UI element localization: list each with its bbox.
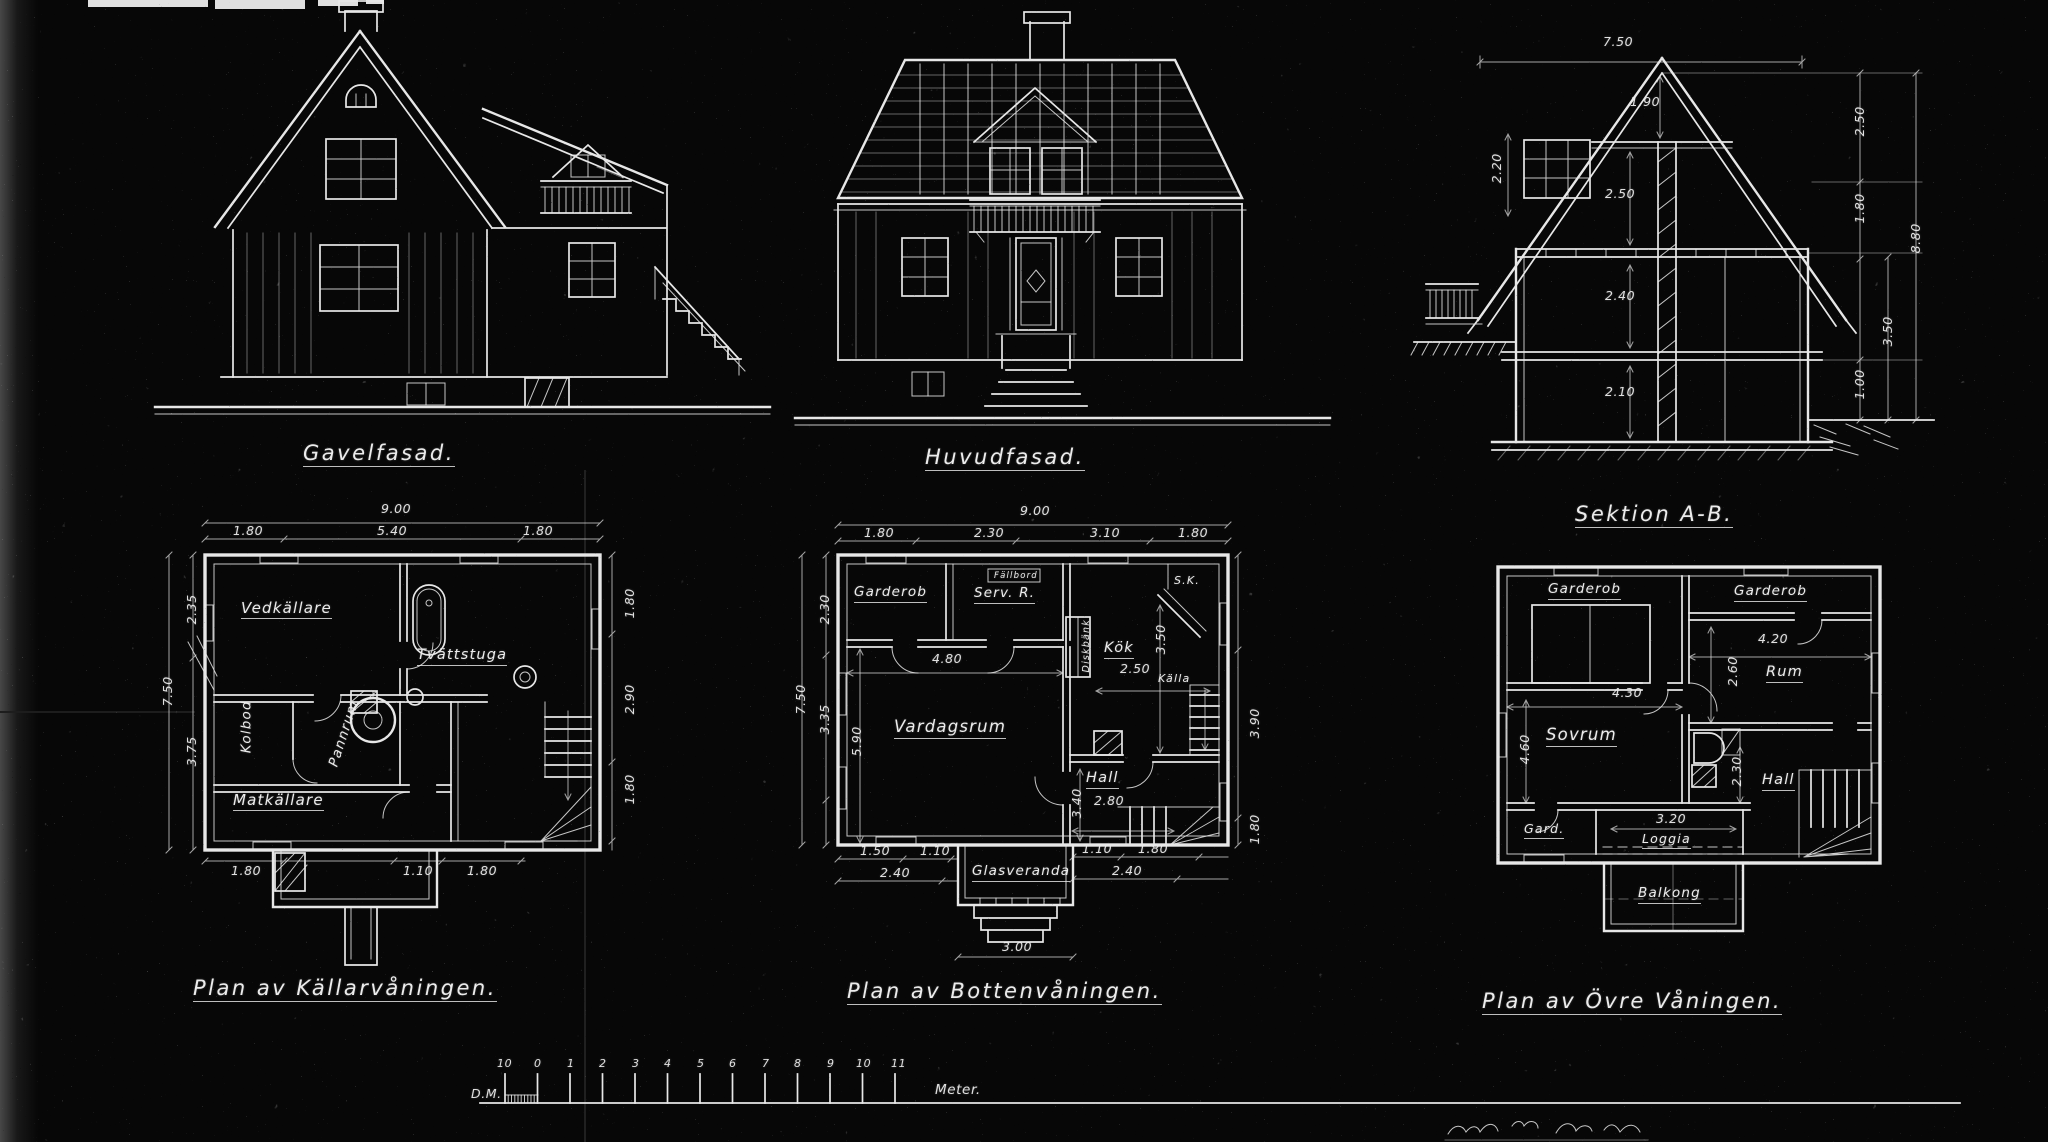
dim-veranda-w: 3.00 xyxy=(1002,941,1032,954)
dim-width: 7.50 xyxy=(1603,36,1633,49)
dim-cellar-w: 9.00 xyxy=(381,503,411,516)
dim-ground-b3: 2.40 xyxy=(880,867,910,880)
dim-ground-h: 7.50 xyxy=(795,684,808,714)
dim-kok-h: 3.50 xyxy=(1155,624,1168,654)
dim-vardagsrum-w: 4.80 xyxy=(932,653,962,666)
dim-rum-w: 4.20 xyxy=(1758,633,1788,646)
room-serv: Serv. R. xyxy=(974,587,1035,604)
dim-total-height: 8.80 xyxy=(1910,223,1923,253)
dim-ground-t2: 2.30 xyxy=(974,527,1004,540)
dim-cellar-w2: 5.40 xyxy=(377,525,407,538)
dim-cellar-b3: 1.80 xyxy=(467,865,497,878)
scale-tick-1: 1 xyxy=(567,1058,575,1069)
dim-ground-w: 9.00 xyxy=(1020,505,1050,518)
scale-tick-3: 3 xyxy=(632,1058,640,1069)
room-glasveranda: Glasveranda xyxy=(972,865,1070,882)
dim-vardagsrum-h: 5.90 xyxy=(851,726,864,756)
dim-ground-t4: 1.80 xyxy=(1178,527,1208,540)
label-fallbord: Fällbord xyxy=(994,572,1038,581)
dim-kok-w: 2.50 xyxy=(1120,663,1150,676)
room-kalla: Källa xyxy=(1158,673,1190,684)
room-vedkallare: Vedkällare xyxy=(241,601,332,619)
room-matkallare: Matkällare xyxy=(233,793,324,811)
dim-r4: 3.50 xyxy=(1882,316,1895,346)
scale-tick-0: 0 xyxy=(534,1058,542,1069)
room-garderob-right: Garderob xyxy=(1734,585,1807,602)
dim-r2: 1.80 xyxy=(1854,193,1867,223)
dim-cellar-b2: 1.10 xyxy=(403,865,433,878)
dim-left: 2.20 xyxy=(1491,153,1504,183)
gavelfasad-title: Gavelfasad. xyxy=(303,443,455,467)
dim-rum-h: 2.60 xyxy=(1727,656,1740,686)
cellar-title: Plan av Källarvåningen. xyxy=(193,978,497,1002)
scale-tick-10b: 10 xyxy=(856,1058,871,1069)
room-tvattstuga: Tvättstuga xyxy=(417,648,507,666)
room-rum: Rum xyxy=(1766,665,1803,683)
dim-loggia-w: 3.20 xyxy=(1656,813,1686,826)
room-kok: Kök xyxy=(1104,641,1134,659)
room-balkong: Balkong xyxy=(1638,887,1701,904)
room-upper-hall: Hall xyxy=(1762,773,1795,791)
dim-cellar-w1: 1.80 xyxy=(233,525,263,538)
scale-tick-8: 8 xyxy=(794,1058,802,1069)
dim-ground-b4: 1.10 xyxy=(1082,843,1112,856)
dim-sovrum-h: 4.60 xyxy=(1519,734,1532,764)
huvudfasad-title: Huvudfasad. xyxy=(925,447,1085,471)
room-loggia: Loggia xyxy=(1642,833,1691,849)
dim-r3: 1.00 xyxy=(1854,369,1867,399)
dim-ground-t3: 3.10 xyxy=(1090,527,1120,540)
scale-tick-5: 5 xyxy=(697,1058,705,1069)
scale-dm-label: D.M. xyxy=(471,1088,502,1101)
dim-cellar-w3: 1.80 xyxy=(523,525,553,538)
scale-tick-2: 2 xyxy=(599,1058,607,1069)
upper-title: Plan av Övre Våningen. xyxy=(1482,991,1782,1015)
dim-cellar-r1: 1.80 xyxy=(624,588,637,618)
room-sk: S.K. xyxy=(1174,575,1200,586)
dim-cellar-l1: 2.35 xyxy=(186,594,199,624)
room-kolbod: Kolbod xyxy=(241,700,255,753)
scale-tick-10a: 10 xyxy=(497,1058,512,1069)
scale-tick-11: 11 xyxy=(891,1058,906,1069)
dim-cellar-r2: 2.90 xyxy=(624,684,637,714)
room-hall: Hall xyxy=(1086,771,1119,789)
dim-upper-hall-h: 2.30 xyxy=(1731,756,1744,786)
ground-title: Plan av Bottenvåningen. xyxy=(847,981,1162,1005)
dim-ridge: 1.90 xyxy=(1630,96,1660,109)
dim-floor1: 2.40 xyxy=(1605,290,1635,303)
dim-sovrum-w: 4.30 xyxy=(1612,687,1642,700)
dim-ground-r2: 1.80 xyxy=(1249,814,1262,844)
scale-tick-6: 6 xyxy=(729,1058,737,1069)
dim-ground-b2: 1.10 xyxy=(920,845,950,858)
dim-ground-t1: 1.80 xyxy=(864,527,894,540)
dim-ground-b6: 2.40 xyxy=(1112,865,1142,878)
dim-ground-r1: 3.90 xyxy=(1249,708,1262,738)
room-garderob: Garderob xyxy=(854,586,927,603)
scale-tick-9: 9 xyxy=(827,1058,835,1069)
scale-tick-7: 7 xyxy=(762,1058,770,1069)
dim-r1: 2.50 xyxy=(1854,106,1867,136)
label-diskbank: Diskbänk xyxy=(1082,619,1092,672)
dim-hall-h: 3.40 xyxy=(1071,788,1084,818)
dim-cellar-l2: 3.75 xyxy=(186,736,199,766)
dim-hall-w: 2.80 xyxy=(1094,795,1124,808)
dim-cellar: 2.10 xyxy=(1605,386,1635,399)
dim-ground-b1: 1.50 xyxy=(860,845,890,858)
dim-cellar-h: 7.50 xyxy=(162,676,175,706)
room-garderob-left: Garderob xyxy=(1548,583,1621,600)
room-vardagsrum: Vardagsrum xyxy=(894,719,1006,739)
scale-meter-label: Meter. xyxy=(935,1084,981,1098)
dim-ground-l2: 3.35 xyxy=(819,704,832,734)
room-gard: Gard. xyxy=(1524,823,1564,839)
dim-ground-b5: 1.80 xyxy=(1138,843,1168,856)
blueprint-sheet: Gavelfasad. Huvudfasad. Sektion A-B. 7.5… xyxy=(0,0,2048,1142)
dim-ground-l1: 2.30 xyxy=(819,594,832,624)
dim-attic: 2.50 xyxy=(1605,188,1635,201)
sektion-title: Sektion A-B. xyxy=(1575,504,1733,528)
room-sovrum: Sovrum xyxy=(1546,727,1617,747)
scale-tick-4: 4 xyxy=(664,1058,672,1069)
dim-cellar-b1: 1.80 xyxy=(231,865,261,878)
dim-cellar-r3: 1.80 xyxy=(624,774,637,804)
